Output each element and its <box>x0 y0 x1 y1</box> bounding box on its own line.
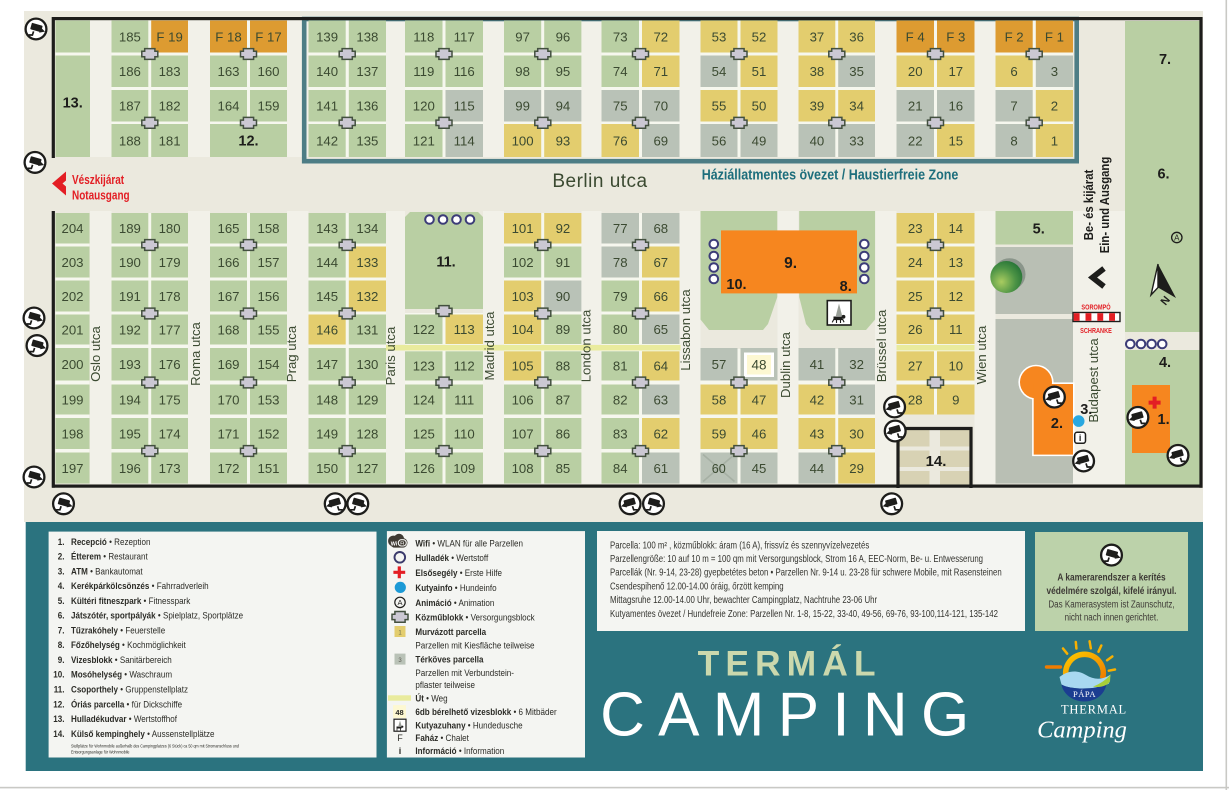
svg-text:48: 48 <box>751 358 766 373</box>
svg-text:171: 171 <box>217 426 239 441</box>
svg-text:Térköves parcella: Térköves parcella <box>415 654 483 665</box>
svg-text:178: 178 <box>159 289 181 304</box>
svg-text:22: 22 <box>908 133 923 148</box>
svg-text:nicht nach innen gerichtet.: nicht nach innen gerichtet. <box>1065 612 1159 623</box>
svg-text:14: 14 <box>948 221 963 236</box>
svg-text:179: 179 <box>159 255 181 270</box>
svg-text:61: 61 <box>653 461 668 476</box>
svg-text:148: 148 <box>316 392 338 407</box>
svg-text:i: i <box>1079 433 1082 443</box>
svg-text:197: 197 <box>61 461 83 476</box>
svg-text:6.: 6. <box>1157 167 1169 183</box>
svg-text:45: 45 <box>752 461 767 476</box>
svg-text:8.: 8. <box>840 279 852 295</box>
svg-text:136: 136 <box>356 99 378 114</box>
svg-text:1.: 1. <box>1158 412 1170 428</box>
svg-text:144: 144 <box>316 255 338 270</box>
svg-text:TERMÁL: TERMÁL <box>698 644 882 684</box>
svg-text:39: 39 <box>810 99 825 114</box>
svg-text:81: 81 <box>613 359 628 374</box>
svg-text:102: 102 <box>512 255 534 270</box>
svg-text:73: 73 <box>613 29 628 44</box>
svg-text:153: 153 <box>257 392 279 407</box>
svg-text:Wifi • WLAN für alle Parzellen: Wifi • WLAN für alle Parzellen <box>415 538 523 549</box>
svg-text:8: 8 <box>1010 133 1017 148</box>
svg-text:London utca: London utca <box>579 309 594 382</box>
svg-text:37: 37 <box>810 29 825 44</box>
svg-text:150: 150 <box>316 461 338 476</box>
svg-text:49: 49 <box>752 133 767 148</box>
svg-text:5.: 5. <box>58 595 65 606</box>
svg-text:28: 28 <box>908 392 923 407</box>
svg-text:Külső kempinghely • Aussenstel: Külső kempinghely • Aussenstellplätze <box>71 728 215 739</box>
svg-text:77: 77 <box>613 221 628 236</box>
svg-text:125: 125 <box>413 426 435 441</box>
svg-text:189: 189 <box>119 221 141 236</box>
svg-text:2.: 2. <box>1051 416 1063 432</box>
svg-text:1.: 1. <box>58 536 65 547</box>
svg-text:7.: 7. <box>58 625 65 636</box>
svg-text:168: 168 <box>217 322 239 337</box>
svg-text:89: 89 <box>556 322 571 337</box>
svg-text:Parcella: 100 m² , közműblokk:: Parcella: 100 m² , közműblokk: áram (16 … <box>610 539 870 550</box>
svg-text:172: 172 <box>217 461 239 476</box>
svg-text:157: 157 <box>257 255 279 270</box>
svg-text:Das Kamerasystem ist Zaunschut: Das Kamerasystem ist Zaunschutz, <box>1048 599 1174 610</box>
svg-text:67: 67 <box>653 255 668 270</box>
svg-text:74: 74 <box>613 64 628 79</box>
svg-text:79: 79 <box>613 289 628 304</box>
svg-text:21: 21 <box>908 99 923 114</box>
svg-text:65: 65 <box>653 322 668 337</box>
svg-text:203: 203 <box>61 255 83 270</box>
svg-text:42: 42 <box>810 392 825 407</box>
svg-text:112: 112 <box>454 359 475 374</box>
svg-text:Ein- und Ausgang: Ein- und Ausgang <box>1097 157 1112 254</box>
svg-text:5.: 5. <box>1033 222 1045 238</box>
svg-text:Kerékpárkölcsönzés • Fahrradve: Kerékpárkölcsönzés • Fahrradverleih <box>71 581 209 592</box>
svg-text:23: 23 <box>908 221 923 236</box>
svg-text:Paris utca: Paris utca <box>383 326 398 385</box>
svg-text:Csoporthely • Gruppenstellplat: Csoporthely • Gruppenstellplatz <box>71 684 188 695</box>
svg-text:34: 34 <box>849 99 864 114</box>
svg-text:3: 3 <box>1051 64 1058 79</box>
svg-text:138: 138 <box>356 29 378 44</box>
svg-text:166: 166 <box>217 255 239 270</box>
svg-text:Kültéri fitneszpark • Fitnessp: Kültéri fitneszpark • Fitnesspark <box>71 595 191 606</box>
svg-text:35: 35 <box>849 64 864 79</box>
svg-text:12.: 12. <box>53 699 64 710</box>
svg-text:170: 170 <box>217 392 239 407</box>
svg-text:védelmére szolgál, kifelé irán: védelmére szolgál, kifelé irányul. <box>1047 585 1177 596</box>
svg-text:110: 110 <box>454 426 475 441</box>
svg-text:Kutyainfo • Hundeinfo: Kutyainfo • Hundeinfo <box>415 582 496 593</box>
svg-text:11.: 11. <box>54 684 65 695</box>
svg-text:Parzellen mit Verbundstein-: Parzellen mit Verbundstein- <box>415 668 514 679</box>
svg-text:8.: 8. <box>58 640 65 651</box>
svg-text:53: 53 <box>712 29 727 44</box>
svg-text:Háziállatmentes övezet / Haust: Háziállatmentes övezet / Haustierfreie Z… <box>702 167 959 183</box>
svg-text:Út • Weg: Út • Weg <box>415 692 447 704</box>
svg-text:169: 169 <box>217 357 239 372</box>
svg-text:135: 135 <box>356 133 378 148</box>
svg-text:32: 32 <box>849 357 864 372</box>
svg-text:182: 182 <box>159 99 181 114</box>
svg-text:15: 15 <box>948 133 963 148</box>
svg-text:Prag utca: Prag utca <box>284 325 299 382</box>
svg-text:111: 111 <box>454 392 474 407</box>
svg-text:Entsorgungsanlage für Wohnmobi: Entsorgungsanlage für Wohnmobile <box>71 749 130 754</box>
svg-text:63: 63 <box>653 392 668 407</box>
svg-text:Notausgang: Notausgang <box>72 189 130 202</box>
svg-text:F 19: F 19 <box>156 29 182 44</box>
svg-text:14.: 14. <box>53 728 64 739</box>
svg-text:Dublin utca: Dublin utca <box>778 331 793 398</box>
svg-text:Vészkijárat: Vészkijárat <box>72 174 124 187</box>
svg-text:F 1: F 1 <box>1045 29 1064 44</box>
svg-text:109: 109 <box>453 461 475 476</box>
svg-text:13: 13 <box>948 255 963 270</box>
svg-text:SCHRANKE: SCHRANKE <box>1080 327 1112 335</box>
svg-text:Faház • Chalet: Faház • Chalet <box>415 732 469 743</box>
svg-text:ATM • Bankautomat: ATM • Bankautomat <box>71 566 143 577</box>
svg-text:87: 87 <box>556 392 571 407</box>
svg-text:56: 56 <box>712 133 727 148</box>
svg-text:180: 180 <box>159 221 181 236</box>
svg-text:88: 88 <box>556 359 571 374</box>
svg-text:Óriás parcella • für Dickschif: Óriás parcella • für Dickschiffe <box>71 698 182 710</box>
svg-text:92: 92 <box>556 221 571 236</box>
svg-text:Kutyazuhany • Hundedusche: Kutyazuhany • Hundedusche <box>415 720 522 731</box>
svg-text:90: 90 <box>556 289 571 304</box>
svg-text:143: 143 <box>316 221 338 236</box>
svg-text:113: 113 <box>454 322 475 337</box>
svg-text:119: 119 <box>413 64 434 79</box>
svg-text:Lissabon utca: Lissabon utca <box>678 289 693 371</box>
svg-text:140: 140 <box>316 64 338 79</box>
svg-text:pflaster teilweise: pflaster teilweise <box>415 679 475 690</box>
svg-text:51: 51 <box>752 64 767 79</box>
svg-text:95: 95 <box>556 64 571 79</box>
svg-text:154: 154 <box>257 357 279 372</box>
svg-text:188: 188 <box>119 133 141 148</box>
svg-text:134: 134 <box>356 221 378 236</box>
svg-text:185: 185 <box>119 29 141 44</box>
svg-text:127: 127 <box>356 461 378 476</box>
svg-text:3.: 3. <box>58 566 65 577</box>
svg-text:Wien utca: Wien utca <box>974 325 989 384</box>
svg-text:187: 187 <box>119 99 141 114</box>
svg-text:76: 76 <box>613 133 628 148</box>
svg-text:44: 44 <box>810 461 825 476</box>
svg-text:A: A <box>1174 234 1180 243</box>
svg-text:163: 163 <box>217 64 239 79</box>
svg-text:80: 80 <box>613 322 628 337</box>
svg-text:105: 105 <box>512 359 534 374</box>
svg-text:165: 165 <box>217 221 239 236</box>
svg-text:10.: 10. <box>726 277 746 293</box>
svg-text:94: 94 <box>556 99 571 114</box>
svg-text:155: 155 <box>257 322 279 337</box>
svg-text:151: 151 <box>257 461 279 476</box>
svg-text:Tűzrakóhely • Feuerstelle: Tűzrakóhely • Feuerstelle <box>71 625 165 636</box>
svg-text:64: 64 <box>653 359 668 374</box>
svg-text:78: 78 <box>613 255 628 270</box>
svg-text:129: 129 <box>356 392 378 407</box>
svg-text:106: 106 <box>512 392 534 407</box>
svg-text:4.: 4. <box>1159 355 1171 371</box>
svg-text:139: 139 <box>316 29 338 44</box>
svg-text:F: F <box>397 733 403 743</box>
svg-text:Be- és kijárat: Be- és kijárat <box>1081 170 1096 241</box>
svg-text:167: 167 <box>217 289 239 304</box>
svg-text:9.: 9. <box>784 255 797 272</box>
svg-text:24: 24 <box>908 255 923 270</box>
svg-text:11: 11 <box>949 322 963 337</box>
svg-text:146: 146 <box>316 322 338 337</box>
svg-text:30: 30 <box>849 426 864 441</box>
svg-text:132: 132 <box>356 289 378 304</box>
svg-text:Animáció • Animation: Animáció • Animation <box>415 597 494 608</box>
svg-text:104: 104 <box>512 322 534 337</box>
svg-text:93: 93 <box>556 133 571 148</box>
svg-text:25: 25 <box>908 289 923 304</box>
svg-text:46: 46 <box>752 426 767 441</box>
svg-text:99: 99 <box>515 99 530 114</box>
svg-text:i: i <box>399 746 402 756</box>
svg-text:Vizesblokk • Sanitärbereich: Vizesblokk • Sanitärbereich <box>71 654 172 665</box>
svg-text:181: 181 <box>159 133 181 148</box>
svg-text:62: 62 <box>653 426 668 441</box>
svg-text:84: 84 <box>613 461 628 476</box>
svg-text:71: 71 <box>653 64 668 79</box>
svg-text:160: 160 <box>257 64 279 79</box>
svg-text:50: 50 <box>752 99 767 114</box>
svg-text:31: 31 <box>849 392 864 407</box>
svg-text:Murvázott parcella: Murvázott parcella <box>415 626 486 637</box>
svg-text:Információ • Information: Információ • Information <box>415 745 504 756</box>
svg-text:2.: 2. <box>58 551 65 562</box>
svg-text:4.: 4. <box>58 581 65 592</box>
svg-text:11.: 11. <box>436 255 455 271</box>
svg-text:7: 7 <box>1010 99 1017 114</box>
svg-text:66: 66 <box>653 289 668 304</box>
svg-text:Recepció • Rezeption: Recepció • Rezeption <box>71 536 150 547</box>
svg-text:145: 145 <box>316 289 338 304</box>
svg-text:100: 100 <box>512 133 534 148</box>
svg-text:F 3: F 3 <box>946 29 965 44</box>
svg-text:FI: FI <box>400 541 404 546</box>
svg-text:14.: 14. <box>926 453 947 470</box>
svg-text:164: 164 <box>217 99 239 114</box>
svg-text:6.: 6. <box>58 610 65 621</box>
svg-text:183: 183 <box>159 64 181 79</box>
svg-text:190: 190 <box>119 255 141 270</box>
svg-text:69: 69 <box>653 133 668 148</box>
svg-text:55: 55 <box>712 99 727 114</box>
svg-text:Hulladék • Wertstoff: Hulladék • Wertstoff <box>415 552 488 563</box>
svg-text:13.: 13. <box>63 96 83 112</box>
svg-text:114: 114 <box>454 133 475 148</box>
svg-text:133: 133 <box>356 255 378 270</box>
svg-text:29: 29 <box>849 461 864 476</box>
svg-text:128: 128 <box>356 426 378 441</box>
svg-text:27: 27 <box>908 359 923 374</box>
svg-text:7.: 7. <box>1159 52 1171 68</box>
svg-text:86: 86 <box>556 426 571 441</box>
svg-text:Madrid utca: Madrid utca <box>482 311 497 381</box>
svg-text:174: 174 <box>159 426 181 441</box>
svg-text:72: 72 <box>653 29 668 44</box>
svg-text:70: 70 <box>653 99 668 114</box>
svg-text:200: 200 <box>61 357 83 372</box>
svg-text:121: 121 <box>413 133 435 148</box>
svg-text:Budapest utca: Budapest utca <box>1086 338 1101 423</box>
svg-text:CAMPING: CAMPING <box>600 681 982 750</box>
svg-text:Parzellen mit Kiesfläche teilw: Parzellen mit Kiesfläche teilweise <box>415 640 534 651</box>
svg-text:10.: 10. <box>53 669 64 680</box>
svg-text:176: 176 <box>159 357 181 372</box>
svg-text:96: 96 <box>556 29 571 44</box>
svg-text:60: 60 <box>712 462 726 476</box>
svg-text:156: 156 <box>257 289 279 304</box>
svg-text:59: 59 <box>712 426 727 441</box>
svg-text:Hulladékudvar • Wertstoffhof: Hulladékudvar • Wertstoffhof <box>71 713 177 724</box>
svg-text:43: 43 <box>810 426 825 441</box>
svg-text:193: 193 <box>119 357 141 372</box>
svg-text:Roma utca: Roma utca <box>188 321 203 385</box>
svg-text:117: 117 <box>454 29 475 44</box>
svg-text:Játszótér, sportpályák • Spiel: Játszótér, sportpályák • Spielplatz, Spo… <box>71 610 243 621</box>
svg-text:Stellplätze für Wohnmobile auß: Stellplätze für Wohnmobile außerhalb des… <box>71 743 239 748</box>
svg-text:26: 26 <box>908 322 923 337</box>
svg-text:103: 103 <box>512 289 534 304</box>
svg-text:75: 75 <box>613 99 628 114</box>
svg-text:186: 186 <box>119 64 141 79</box>
svg-text:6: 6 <box>1010 64 1017 79</box>
svg-text:108: 108 <box>512 461 534 476</box>
svg-text:85: 85 <box>556 461 571 476</box>
svg-text:40: 40 <box>810 133 825 148</box>
svg-text:68: 68 <box>653 221 668 236</box>
svg-text:204: 204 <box>61 221 83 236</box>
svg-text:175: 175 <box>159 392 181 407</box>
svg-text:54: 54 <box>712 64 727 79</box>
svg-text:2: 2 <box>1051 99 1058 114</box>
svg-text:Brüssel utca: Brüssel utca <box>874 309 889 382</box>
svg-text:83: 83 <box>613 426 628 441</box>
svg-text:THERMAL: THERMAL <box>1061 703 1127 717</box>
svg-text:48: 48 <box>395 708 403 717</box>
svg-text:Elsősegély • Erste Hilfe: Elsősegély • Erste Hilfe <box>415 567 502 578</box>
svg-text:173: 173 <box>159 461 181 476</box>
svg-text:12: 12 <box>948 289 963 304</box>
svg-text:Csendespihenő 12.00-14.00 órái: Csendespihenő 12.00-14.00 óráig, őrzött … <box>610 581 784 592</box>
svg-text:41: 41 <box>810 357 825 372</box>
svg-text:A: A <box>397 598 402 607</box>
svg-text:58: 58 <box>712 392 727 407</box>
svg-text:52: 52 <box>752 29 767 44</box>
svg-text:9.: 9. <box>58 654 65 665</box>
svg-text:Parcellák (Nr. 9-14, 23-28) gy: Parcellák (Nr. 9-14, 23-28) gyepbetétes … <box>610 567 1002 578</box>
svg-text:202: 202 <box>61 289 83 304</box>
svg-text:116: 116 <box>454 64 475 79</box>
svg-text:152: 152 <box>257 426 279 441</box>
svg-text:194: 194 <box>119 392 141 407</box>
svg-text:107: 107 <box>512 426 534 441</box>
svg-text:137: 137 <box>356 64 378 79</box>
svg-text:196: 196 <box>119 461 141 476</box>
svg-text:192: 192 <box>119 322 141 337</box>
svg-text:Közműblokk • Versorgungsblock: Közműblokk • Versorgungsblock <box>415 612 535 623</box>
svg-text:124: 124 <box>413 392 435 407</box>
svg-text:20: 20 <box>908 64 923 79</box>
svg-text:201: 201 <box>61 322 83 337</box>
svg-text:57: 57 <box>712 357 727 372</box>
svg-text:82: 82 <box>613 392 628 407</box>
svg-text:123: 123 <box>413 359 435 374</box>
svg-text:Parzellengröße: 10 auf 10 m =: Parzellengröße: 10 auf 10 m = 100 qm mit… <box>610 553 983 564</box>
svg-text:SOROMPÓ: SOROMPÓ <box>1081 302 1110 312</box>
svg-text:16: 16 <box>948 99 963 114</box>
svg-text:159: 159 <box>257 99 279 114</box>
svg-text:131: 131 <box>356 322 378 337</box>
svg-text:126: 126 <box>413 461 435 476</box>
svg-text:Wi: Wi <box>391 542 398 548</box>
svg-text:130: 130 <box>356 357 378 372</box>
svg-text:36: 36 <box>849 29 864 44</box>
svg-text:A kamerarendszer a kerítés: A kamerarendszer a kerítés <box>1057 572 1165 583</box>
svg-text:F 17: F 17 <box>255 29 281 44</box>
svg-text:199: 199 <box>61 392 83 407</box>
svg-text:Étterem • Restaurant: Étterem • Restaurant <box>71 551 148 562</box>
svg-text:147: 147 <box>316 357 338 372</box>
svg-text:142: 142 <box>316 133 338 148</box>
svg-text:PÁPA: PÁPA <box>1073 689 1096 699</box>
svg-text:13.: 13. <box>53 713 64 724</box>
svg-text:158: 158 <box>257 221 279 236</box>
svg-text:91: 91 <box>556 255 571 270</box>
svg-text:177: 177 <box>159 322 181 337</box>
svg-text:47: 47 <box>752 392 767 407</box>
svg-text:33: 33 <box>849 133 864 148</box>
svg-text:6db bérelhető vizesblokk • 6 M: 6db bérelhető vizesblokk • 6 Mitbäder <box>415 706 556 717</box>
svg-text:191: 191 <box>119 289 141 304</box>
svg-text:122: 122 <box>413 322 435 337</box>
svg-text:118: 118 <box>413 29 434 44</box>
svg-text:Mittagsruhe 12.00-14.00 Uhr, b: Mittagsruhe 12.00-14.00 Uhr, bewachter C… <box>610 594 877 605</box>
svg-text:F 18: F 18 <box>215 29 241 44</box>
svg-text:1: 1 <box>1051 133 1058 148</box>
svg-text:115: 115 <box>454 99 475 114</box>
svg-text:98: 98 <box>515 64 530 79</box>
svg-text:Oslo utca: Oslo utca <box>88 325 103 381</box>
svg-text:120: 120 <box>413 99 435 114</box>
svg-text:Berlin utca: Berlin utca <box>552 171 647 192</box>
svg-text:97: 97 <box>515 29 530 44</box>
svg-text:195: 195 <box>119 426 141 441</box>
svg-text:Főzőhelység • Kochmöglichkeit: Főzőhelység • Kochmöglichkeit <box>71 640 186 651</box>
svg-text:Camping: Camping <box>1037 717 1127 744</box>
svg-text:F 2: F 2 <box>1005 29 1024 44</box>
svg-text:17: 17 <box>948 64 963 79</box>
svg-text:F 4: F 4 <box>906 29 925 44</box>
svg-text:38: 38 <box>810 64 825 79</box>
svg-text:Kutyamentes övezet / Hundefrei: Kutyamentes övezet / Hundefreie Zone: Pa… <box>610 608 998 619</box>
svg-text:12.: 12. <box>238 134 258 150</box>
svg-text:101: 101 <box>512 221 534 236</box>
svg-text:10: 10 <box>948 359 963 374</box>
